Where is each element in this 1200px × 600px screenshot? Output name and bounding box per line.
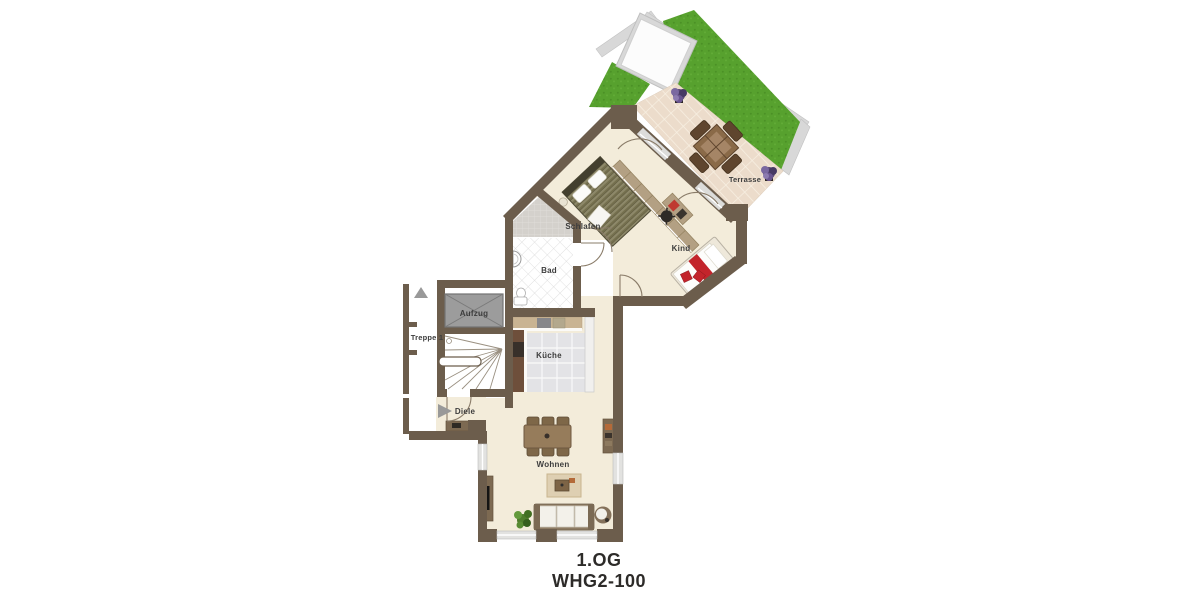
north-triangle-icon [414,287,428,298]
wall-kind-bottom [613,296,686,306]
stair-handrail [439,357,481,366]
title-level: 1.OG [576,550,621,570]
plan-title: 1.OG WHG2-100 [552,550,646,591]
staircase [439,336,502,389]
wall-below-elevator [443,327,505,334]
armchair [595,507,612,524]
wall-diele-corner [468,420,486,432]
wall-stairs-bottom-l [437,389,447,397]
wall-wohnen-bottom-2 [536,529,557,542]
wall-access-thin-upper [403,284,409,394]
wall-diele-bottom [409,431,486,440]
wall-core-left [505,280,513,408]
label-aufzug: Aufzug [460,309,489,318]
wall-access-stub [409,350,417,355]
kitchen-counter-left [513,330,525,392]
wall-stairs-bottom-r [470,389,513,397]
kitchen-cooktop [553,318,565,328]
wall-bad-right-lower [573,266,581,308]
wall-wohnen-left-upper [478,431,487,444]
wall-kitchen-top [505,308,595,317]
kitchen-oven [513,342,524,357]
kitchen-tall-cabinet [585,317,594,392]
shelf [603,419,614,453]
rug-deco [569,478,575,483]
label-kind: Kind [672,244,691,253]
sofa [534,504,594,530]
label-diele: Diele [455,407,476,416]
wall-stairs-top [437,280,513,288]
label-schlafen: Schlafen [565,222,600,231]
diele-sideboard [446,421,470,431]
title-unit: WHG2-100 [552,571,646,591]
wall-wohnen-right [613,296,623,542]
label-treppe: Treppe 1 [411,333,443,342]
dining-set [524,417,571,456]
label-bad: Bad [541,266,557,275]
label-kueche: Küche [536,351,562,360]
wall-access-thin-lower [403,398,409,434]
label-terrasse: Terrasse [729,175,761,184]
door-arc-bad [581,243,604,266]
wall-access-stub [409,322,417,327]
wall-kind-right [736,214,747,264]
floorplan-page: Terrasse Schlafen Kind Bad Aufzug Treppe… [0,0,1200,600]
label-wohnen: Wohnen [537,460,570,469]
kitchen-sink [537,318,551,328]
wall-wohnen-bottom-1 [478,529,497,542]
floorplan-svg: Terrasse Schlafen Kind Bad Aufzug Treppe… [0,0,1200,600]
